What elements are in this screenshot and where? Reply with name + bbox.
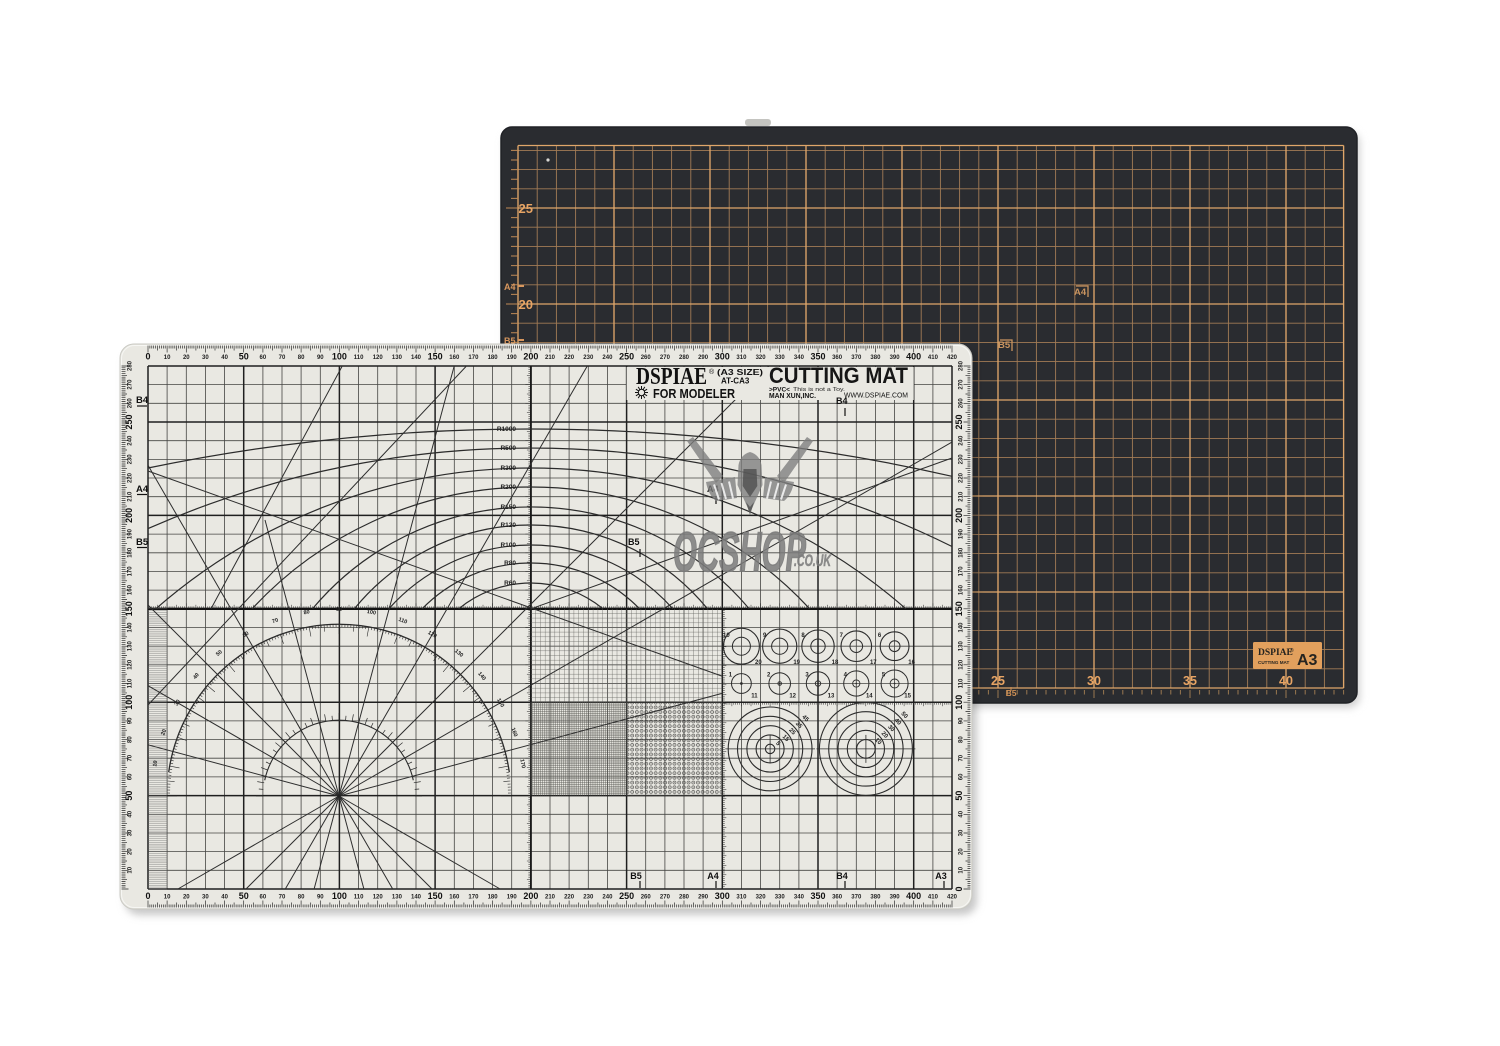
svg-text:320: 320: [756, 355, 767, 361]
svg-text:70: 70: [279, 355, 286, 361]
svg-text:20: 20: [755, 660, 762, 666]
svg-text:40: 40: [1279, 674, 1293, 688]
svg-text:360: 360: [832, 895, 843, 901]
svg-text:130: 130: [128, 641, 134, 652]
svg-text:A4: A4: [1074, 287, 1087, 298]
svg-text:230: 230: [583, 895, 594, 901]
svg-text:35: 35: [1183, 674, 1197, 688]
svg-text:50: 50: [954, 791, 964, 801]
svg-text:270: 270: [660, 895, 671, 901]
svg-text:15: 15: [904, 694, 911, 700]
svg-text:11: 11: [751, 694, 758, 700]
svg-text:B4: B4: [836, 396, 848, 406]
svg-text:30: 30: [128, 829, 134, 836]
svg-text:R120: R120: [500, 522, 516, 529]
svg-text:400: 400: [906, 352, 921, 362]
svg-text:220: 220: [959, 472, 965, 483]
svg-text:210: 210: [959, 491, 965, 502]
svg-text:180: 180: [488, 895, 499, 901]
svg-text:180: 180: [488, 355, 499, 361]
svg-text:R1000: R1000: [497, 426, 517, 433]
svg-text:20: 20: [519, 297, 533, 312]
svg-text:30: 30: [202, 895, 209, 901]
svg-text:220: 220: [564, 895, 575, 901]
svg-text:30: 30: [1087, 674, 1101, 688]
svg-text:R80: R80: [504, 560, 516, 567]
svg-text:170: 170: [128, 566, 134, 577]
svg-text:190: 190: [959, 528, 965, 539]
svg-text:50: 50: [239, 352, 249, 362]
svg-text:260: 260: [641, 355, 652, 361]
svg-text:240: 240: [602, 895, 613, 901]
svg-text:R100: R100: [500, 542, 516, 549]
svg-text:B5: B5: [998, 340, 1011, 351]
svg-text:A4: A4: [136, 484, 149, 495]
svg-text:R150: R150: [500, 504, 516, 511]
svg-text:®: ®: [1290, 647, 1294, 654]
svg-text:R200: R200: [500, 484, 516, 491]
svg-text:(A3 SIZE): (A3 SIZE): [717, 367, 763, 377]
svg-text:A4: A4: [504, 282, 516, 292]
svg-text:90: 90: [317, 895, 324, 901]
svg-text:120: 120: [373, 895, 384, 901]
svg-text:160: 160: [959, 584, 965, 595]
svg-text:250: 250: [619, 352, 634, 362]
svg-text:60: 60: [128, 773, 134, 780]
svg-text:120: 120: [128, 659, 134, 670]
svg-text:130: 130: [392, 355, 403, 361]
svg-text:CUTTING MAT: CUTTING MAT: [1258, 660, 1289, 665]
svg-text:12: 12: [789, 694, 796, 700]
svg-text:360: 360: [832, 355, 843, 361]
svg-text:80: 80: [303, 609, 310, 616]
svg-text:140: 140: [411, 355, 422, 361]
svg-text:40: 40: [959, 810, 965, 817]
svg-text:380: 380: [870, 895, 881, 901]
svg-text:100: 100: [332, 352, 347, 362]
svg-text:90: 90: [959, 717, 965, 724]
svg-text:140: 140: [411, 895, 422, 901]
svg-text:320: 320: [756, 895, 767, 901]
svg-text:190: 190: [507, 355, 518, 361]
svg-text:0: 0: [954, 886, 964, 891]
svg-text:13: 13: [828, 694, 835, 700]
svg-text:200: 200: [954, 508, 964, 523]
svg-text:70: 70: [959, 754, 965, 761]
svg-text:®: ®: [709, 368, 715, 376]
svg-text:10: 10: [164, 895, 171, 901]
svg-text:10: 10: [164, 355, 171, 361]
svg-text:350: 350: [810, 352, 825, 362]
svg-text:270: 270: [128, 379, 134, 390]
svg-text:380: 380: [870, 355, 881, 361]
svg-text:B5: B5: [136, 537, 149, 548]
svg-text:280: 280: [128, 360, 134, 371]
svg-text:0: 0: [145, 352, 150, 362]
svg-text:310: 310: [736, 895, 747, 901]
svg-text:240: 240: [128, 435, 134, 446]
svg-text:310: 310: [736, 355, 747, 361]
svg-text:OCSHOP: OCSHOP: [673, 520, 806, 583]
svg-text:220: 220: [128, 472, 134, 483]
svg-text:.CO.UK: .CO.UK: [794, 551, 832, 570]
svg-text:280: 280: [679, 355, 690, 361]
svg-text:R500: R500: [500, 445, 516, 452]
svg-text:260: 260: [128, 398, 134, 409]
svg-text:150: 150: [124, 601, 134, 616]
svg-text:170: 170: [468, 895, 479, 901]
svg-text:260: 260: [959, 398, 965, 409]
svg-text:30: 30: [959, 829, 965, 836]
svg-text:80: 80: [298, 355, 305, 361]
svg-text:190: 190: [507, 895, 518, 901]
svg-text:14: 14: [866, 694, 873, 700]
svg-text:240: 240: [959, 435, 965, 446]
svg-text:140: 140: [959, 622, 965, 633]
svg-text:B5: B5: [630, 871, 642, 881]
svg-text:B5: B5: [628, 537, 640, 547]
svg-text:130: 130: [959, 641, 965, 652]
svg-text:CUTTING MAT: CUTTING MAT: [769, 363, 909, 388]
svg-text:420: 420: [947, 355, 958, 361]
svg-text:350: 350: [810, 891, 825, 901]
svg-text:240: 240: [602, 355, 613, 361]
svg-text:40: 40: [221, 355, 228, 361]
svg-text:90: 90: [336, 607, 342, 613]
svg-text:140: 140: [128, 622, 134, 633]
svg-text:390: 390: [890, 895, 901, 901]
svg-text:90: 90: [128, 717, 134, 724]
svg-text:370: 370: [851, 895, 862, 901]
svg-text:190: 190: [128, 528, 134, 539]
svg-text:10: 10: [959, 866, 965, 873]
svg-text:150: 150: [428, 891, 443, 901]
svg-text:260: 260: [641, 895, 652, 901]
svg-text:DSPIAE: DSPIAE: [1258, 648, 1293, 658]
svg-text:400: 400: [906, 891, 921, 901]
svg-text:16: 16: [908, 660, 915, 666]
svg-text:40: 40: [221, 895, 228, 901]
svg-text:60: 60: [959, 773, 965, 780]
svg-text:19: 19: [793, 660, 800, 666]
svg-text:B4: B4: [136, 395, 149, 406]
svg-text:10: 10: [152, 760, 159, 767]
svg-text:330: 330: [775, 355, 786, 361]
svg-text:60: 60: [260, 895, 267, 901]
svg-text:R60: R60: [504, 580, 516, 587]
svg-text:270: 270: [660, 355, 671, 361]
svg-text:100: 100: [124, 695, 134, 710]
svg-text:A4: A4: [707, 871, 719, 881]
svg-text:17: 17: [870, 660, 877, 666]
svg-text:120: 120: [373, 355, 384, 361]
svg-text:20: 20: [128, 848, 134, 855]
svg-text:25: 25: [991, 674, 1005, 688]
svg-text:110: 110: [354, 895, 364, 901]
svg-text:370: 370: [851, 355, 862, 361]
svg-text:100: 100: [954, 695, 964, 710]
svg-text:270: 270: [959, 379, 965, 390]
svg-text:70: 70: [128, 754, 134, 761]
svg-text:80: 80: [298, 895, 305, 901]
svg-text:230: 230: [583, 355, 594, 361]
svg-text:FOR MODELER: FOR MODELER: [653, 386, 736, 401]
svg-text:80: 80: [128, 736, 134, 743]
svg-text:410: 410: [928, 895, 939, 901]
svg-text:160: 160: [128, 584, 134, 595]
svg-text:110: 110: [128, 678, 134, 688]
svg-text:20: 20: [183, 355, 190, 361]
svg-text:B4: B4: [836, 871, 848, 881]
svg-text:300: 300: [715, 352, 730, 362]
svg-text:90: 90: [317, 355, 324, 361]
svg-text:WWW.DSPIAE.COM: WWW.DSPIAE.COM: [844, 391, 908, 400]
svg-text:250: 250: [619, 891, 634, 901]
svg-text:60: 60: [260, 355, 267, 361]
svg-text:120: 120: [959, 659, 965, 670]
svg-text:300: 300: [715, 891, 730, 901]
svg-text:110: 110: [959, 678, 965, 688]
svg-text:20: 20: [183, 895, 190, 901]
svg-text:110: 110: [354, 355, 364, 361]
svg-text:R300: R300: [500, 465, 516, 472]
svg-text:180: 180: [128, 547, 134, 558]
svg-text:170: 170: [468, 355, 479, 361]
svg-text:25: 25: [519, 201, 533, 216]
svg-text:390: 390: [890, 355, 901, 361]
svg-text:160: 160: [449, 355, 460, 361]
svg-text:40: 40: [128, 810, 134, 817]
svg-text:340: 340: [794, 895, 805, 901]
svg-text:18: 18: [832, 660, 839, 666]
svg-text:200: 200: [124, 508, 134, 523]
svg-text:100: 100: [332, 891, 347, 901]
svg-text:280: 280: [959, 360, 965, 371]
svg-text:220: 220: [564, 355, 575, 361]
svg-text:200: 200: [523, 891, 538, 901]
svg-text:330: 330: [775, 895, 786, 901]
svg-text:170: 170: [959, 566, 965, 577]
svg-text:150: 150: [954, 601, 964, 616]
svg-text:80: 80: [959, 736, 965, 743]
svg-text:160: 160: [449, 895, 460, 901]
svg-text:410: 410: [928, 355, 939, 361]
svg-text:210: 210: [128, 491, 134, 502]
svg-text:340: 340: [794, 355, 805, 361]
svg-text:290: 290: [698, 895, 709, 901]
svg-text:230: 230: [128, 454, 134, 465]
svg-text:290: 290: [698, 355, 709, 361]
svg-text:30: 30: [202, 355, 209, 361]
svg-text:70: 70: [279, 895, 286, 901]
svg-text:230: 230: [959, 454, 965, 465]
svg-text:200: 200: [523, 352, 538, 362]
svg-text:210: 210: [545, 895, 556, 901]
svg-text:10: 10: [128, 866, 134, 873]
svg-text:250: 250: [124, 414, 134, 429]
svg-text:250: 250: [954, 414, 964, 429]
svg-text:AT-CA3: AT-CA3: [721, 377, 750, 386]
svg-text:A3: A3: [935, 871, 947, 881]
svg-text:130: 130: [392, 895, 403, 901]
svg-text:0: 0: [145, 891, 150, 901]
svg-text:20: 20: [959, 848, 965, 855]
svg-text:MAN XUN,INC.: MAN XUN,INC.: [769, 393, 816, 400]
svg-text:280: 280: [679, 895, 690, 901]
svg-text:210: 210: [545, 355, 556, 361]
svg-text:180: 180: [959, 547, 965, 558]
svg-text:150: 150: [428, 352, 443, 362]
svg-text:10: 10: [723, 633, 730, 639]
svg-text:A3: A3: [1297, 652, 1318, 669]
svg-text:50: 50: [124, 791, 134, 801]
svg-text:50: 50: [239, 891, 249, 901]
svg-text:420: 420: [947, 895, 958, 901]
